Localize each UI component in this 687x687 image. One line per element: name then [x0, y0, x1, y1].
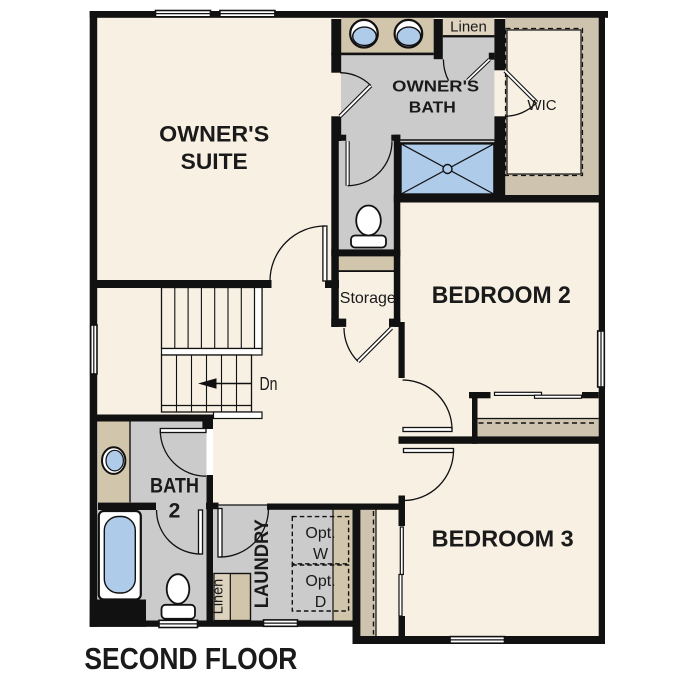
svg-text:SECOND FLOOR: SECOND FLOOR — [84, 641, 297, 676]
svg-text:Dn: Dn — [260, 374, 278, 394]
svg-text:BEDROOM 2: BEDROOM 2 — [432, 282, 571, 309]
svg-text:BATH: BATH — [150, 475, 199, 498]
svg-text:Opt.: Opt. — [305, 525, 335, 542]
svg-text:OWNER'S: OWNER'S — [159, 122, 269, 147]
svg-text:BATH: BATH — [409, 100, 456, 117]
svg-text:OWNER'S: OWNER'S — [392, 79, 479, 96]
svg-text:W: W — [313, 546, 329, 563]
svg-text:D: D — [315, 594, 327, 611]
svg-text:SUITE: SUITE — [181, 149, 248, 174]
svg-text:Storage: Storage — [340, 290, 396, 307]
svg-text:BEDROOM 3: BEDROOM 3 — [432, 526, 574, 552]
svg-text:WIC: WIC — [527, 97, 556, 114]
svg-text:Linen: Linen — [450, 19, 487, 36]
svg-text:LAUNDRY: LAUNDRY — [251, 519, 273, 608]
svg-text:Opt.: Opt. — [305, 573, 335, 590]
svg-text:2: 2 — [169, 500, 181, 523]
